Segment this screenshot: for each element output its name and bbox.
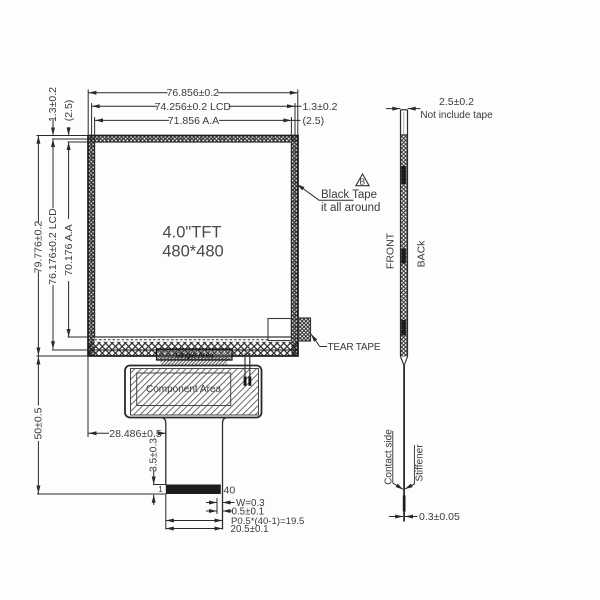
svg-text:76.176±0.2 LCD: 76.176±0.2 LCD (47, 208, 59, 285)
svg-text:50±0.5: 50±0.5 (33, 407, 45, 439)
svg-text:70.176 A.A: 70.176 A.A (63, 224, 75, 275)
svg-text:BACk: BACk (416, 240, 428, 268)
svg-text:Not include tape: Not include tape (420, 110, 493, 121)
svg-text:it all around: it all around (321, 202, 380, 214)
svg-text:1.3±0.2: 1.3±0.2 (303, 101, 338, 113)
svg-text:480*480: 480*480 (162, 243, 223, 261)
svg-text:20.5±0.1: 20.5±0.1 (231, 524, 269, 535)
svg-text:B: B (359, 176, 365, 186)
svg-text:(2.5): (2.5) (303, 115, 325, 127)
svg-text:74.256±0.2 LCD: 74.256±0.2 LCD (155, 101, 232, 113)
svg-text:(2.5): (2.5) (63, 100, 75, 122)
svg-text:4.0"TFT: 4.0"TFT (162, 224, 221, 242)
svg-text:2.5±0.2: 2.5±0.2 (439, 96, 474, 108)
svg-text:0.3±0.05: 0.3±0.05 (419, 511, 460, 523)
svg-text:3.5±0.3: 3.5±0.3 (149, 438, 160, 472)
svg-text:Stiffener: Stiffener (415, 444, 426, 482)
svg-text:40: 40 (224, 485, 236, 497)
svg-text:28.486±0.5: 28.486±0.5 (109, 428, 162, 440)
svg-text:FRONT: FRONT (385, 232, 397, 269)
svg-text:79.776±0.2: 79.776±0.2 (33, 221, 45, 274)
svg-text:1.3±0.2: 1.3±0.2 (47, 87, 59, 122)
svg-text:Single Area: Single Area (175, 350, 214, 359)
svg-text:76.856±0.2: 76.856±0.2 (167, 87, 220, 99)
svg-text:71.856 A.A: 71.856 A.A (168, 115, 219, 127)
svg-text:Component Area: Component Area (146, 384, 221, 395)
svg-text:Black Tape: Black Tape (321, 189, 377, 201)
svg-text:TEAR TAPE: TEAR TAPE (328, 342, 381, 353)
svg-text:1: 1 (158, 484, 163, 494)
